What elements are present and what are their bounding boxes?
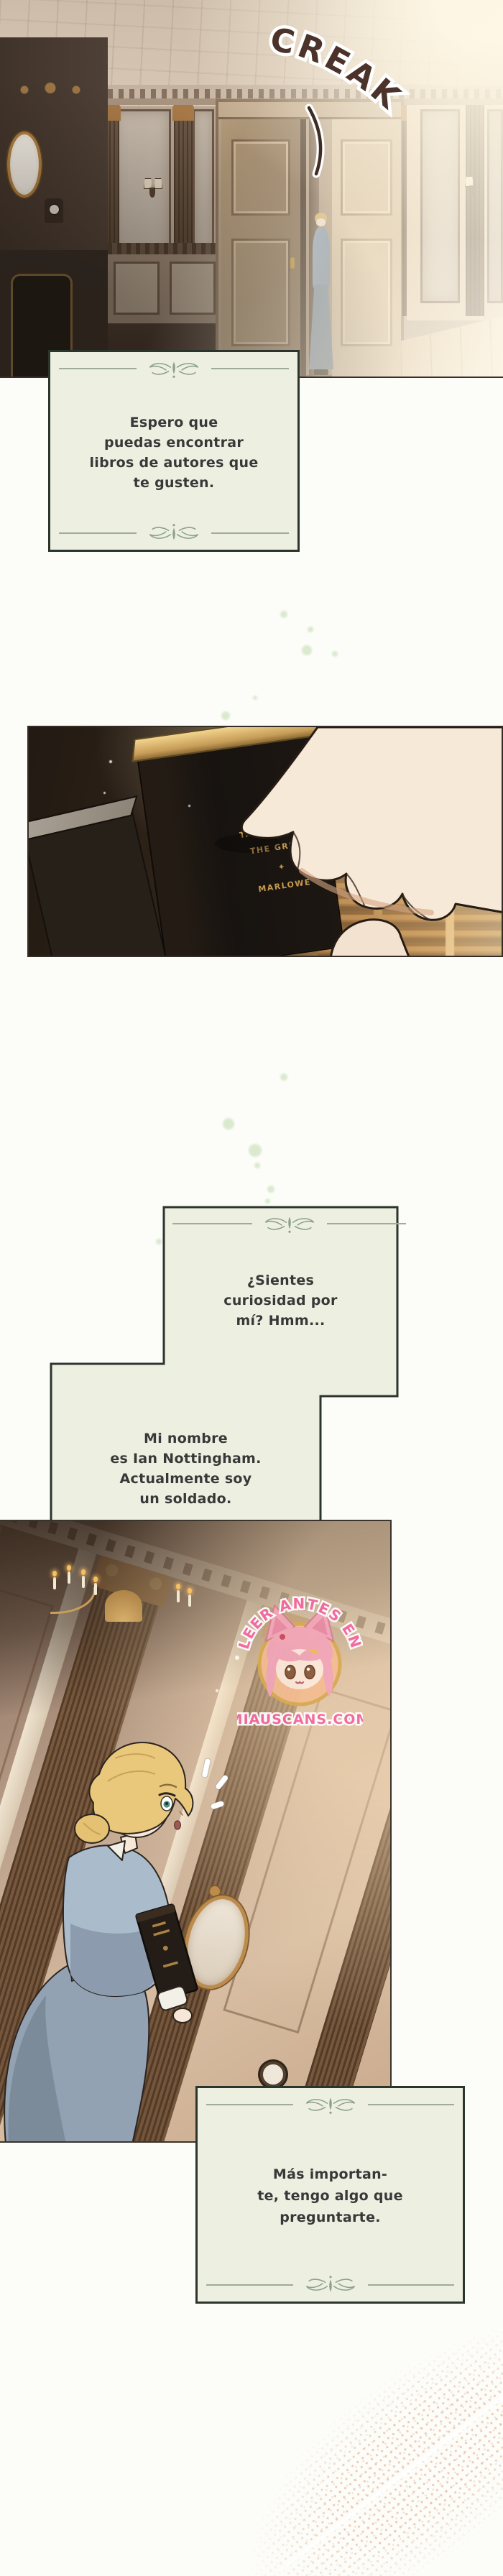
speckle-highlight-line xyxy=(278,2358,503,2573)
dialog-line: es Ian Nottingham. xyxy=(51,1449,320,1469)
dialog-line: te, tengo algo que xyxy=(198,2185,463,2207)
ornament-row xyxy=(50,358,297,379)
sfx-creak: CREAK xyxy=(251,10,420,183)
dialog-line: mí? Hmm... xyxy=(164,1311,397,1331)
sparkle-dot xyxy=(249,1144,262,1157)
sparkle-dot xyxy=(267,1186,274,1193)
sparkle-dot xyxy=(308,627,313,632)
dialog-line: te gusten. xyxy=(50,473,297,493)
manhwa-page: CREAK Espero que puedas encontrar libros… xyxy=(0,0,503,2576)
sparkle-dot xyxy=(280,1074,287,1081)
sparkle-dot xyxy=(221,711,230,720)
divider-line xyxy=(59,368,137,369)
sparkle-dot xyxy=(302,645,312,655)
dialog-line: ¿Sientes xyxy=(164,1270,397,1291)
divider-line xyxy=(368,2284,455,2286)
divider-line xyxy=(59,532,137,534)
divider-line xyxy=(327,1223,407,1224)
sparkle-dot xyxy=(223,1118,234,1130)
speckle-texture xyxy=(203,2273,503,2576)
dialog-line: un soldado. xyxy=(51,1489,320,1509)
scanlation-watermark: LEER ANTES EN MIAUSCANS.COM xyxy=(237,1594,363,1734)
reaching-hand xyxy=(29,727,503,957)
divider-line xyxy=(211,532,289,534)
dialog-line: Más importan- xyxy=(198,2164,463,2185)
dialog-line: Espero que xyxy=(50,412,297,433)
dialog-line: puedas encontrar xyxy=(50,433,297,453)
dialog-line: curiosidad por xyxy=(164,1291,397,1311)
dialog-line: libros de autores que xyxy=(50,453,297,473)
watermark-site-text: MIAUSCANS.COM xyxy=(237,1712,363,1727)
flourish-icon xyxy=(300,2274,361,2296)
sparkle-dot xyxy=(254,1163,260,1168)
sparkle-dot xyxy=(253,696,257,700)
divider-line xyxy=(206,2284,293,2286)
flourish-icon xyxy=(259,1213,320,1234)
ornament-row xyxy=(198,2274,463,2296)
dialog-text: Espero que puedas encontrar libros de au… xyxy=(50,412,297,493)
thumb xyxy=(331,920,410,957)
ornament-row xyxy=(164,1213,415,1234)
divider-line xyxy=(206,2104,293,2105)
ornament-row xyxy=(50,522,297,544)
svg-text:CREAK: CREAK xyxy=(267,20,410,119)
surprise-marks-icon xyxy=(201,1758,229,1809)
dialog-line: preguntarte. xyxy=(198,2207,463,2228)
sparkle-dot xyxy=(280,611,287,618)
divider-line xyxy=(211,368,289,369)
dialog-text: ¿Sientes curiosidad por mí? Hmm... xyxy=(164,1270,397,1331)
hand xyxy=(173,2008,192,2023)
dialog-text: Más importan- te, tengo algo que pregunt… xyxy=(198,2164,463,2228)
flourish-icon xyxy=(144,522,204,544)
dialog-line: Mi nombre xyxy=(51,1428,320,1449)
divider-line xyxy=(172,1223,252,1224)
sparkle-dot xyxy=(332,651,338,657)
panel-hall-door: CREAK xyxy=(0,0,503,378)
speech-box-4: Más importan- te, tengo algo que pregunt… xyxy=(195,2086,465,2304)
sfx-creak-text: CREAK xyxy=(267,20,410,119)
hair-bun xyxy=(75,1814,109,1843)
speech-box-1: Espero que puedas encontrar libros de au… xyxy=(48,350,300,552)
hand-silhouette xyxy=(241,727,503,920)
ornament-row xyxy=(198,2094,463,2115)
panel-hand-book: TAMBURLAINE THE GREAT ✦ MARLOWE xyxy=(27,726,503,957)
dust-dot xyxy=(216,1689,218,1692)
flourish-icon xyxy=(144,358,204,379)
flourish-icon xyxy=(300,2094,361,2115)
dialog-text: Mi nombre es Ian Nottingham. Actualmente… xyxy=(51,1428,320,1509)
dialog-line: Actualmente soy xyxy=(51,1469,320,1489)
divider-line xyxy=(368,2104,455,2105)
